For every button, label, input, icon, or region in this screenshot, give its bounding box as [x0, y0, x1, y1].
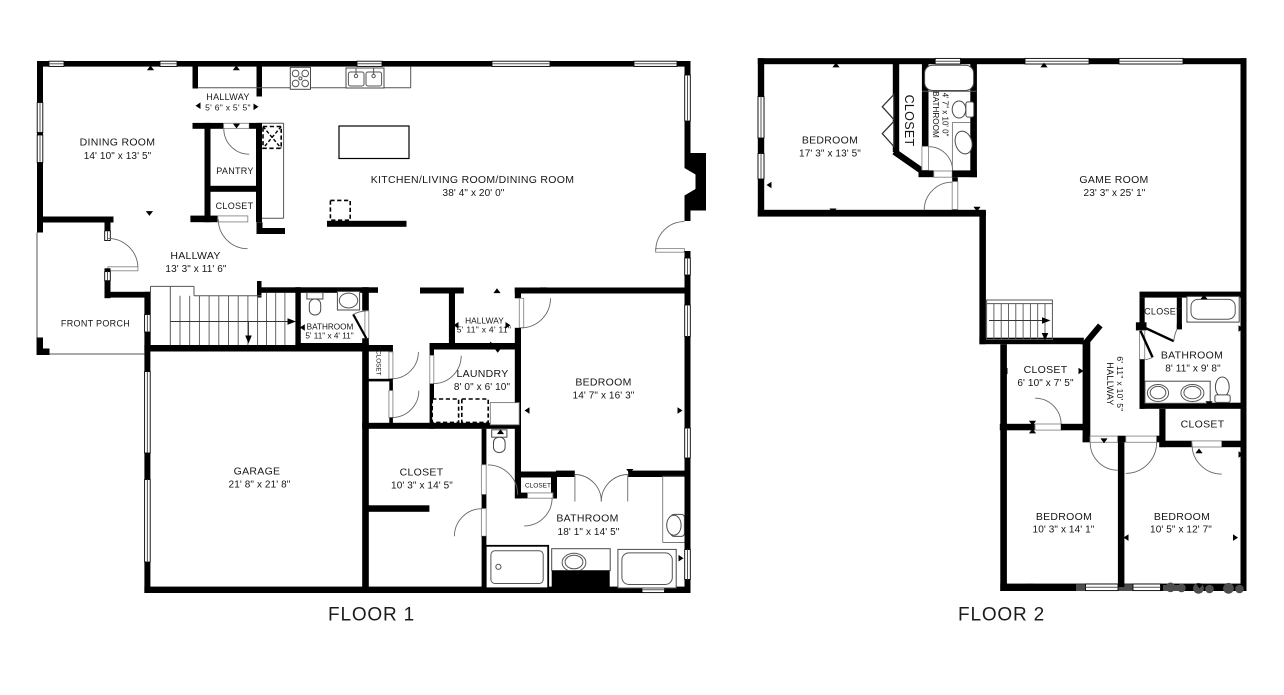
svg-text:4' 7" x 10' 0": 4' 7" x 10' 0" [941, 93, 950, 137]
svg-text:8' 11" x 9' 8": 8' 11" x 9' 8" [1165, 364, 1221, 375]
svg-text:BATHROOM: BATHROOM [1161, 350, 1223, 362]
svg-text:BEDROOM: BEDROOM [1154, 511, 1210, 523]
svg-text:14' 7" x 16' 3": 14' 7" x 16' 3" [573, 391, 635, 402]
svg-text:HALLWAY: HALLWAY [206, 92, 249, 102]
svg-text:10' 3" x 14' 1": 10' 3" x 14' 1" [1033, 525, 1095, 536]
svg-text:23' 3" x 25' 1": 23' 3" x 25' 1" [1084, 188, 1146, 199]
svg-text:13' 3" x 11' 6": 13' 3" x 11' 6" [165, 264, 227, 275]
svg-text:14' 10" x 13' 5": 14' 10" x 13' 5" [84, 151, 152, 162]
svg-text:HALLWAY: HALLWAY [170, 250, 220, 262]
svg-text:5' 6" x 5' 5": 5' 6" x 5' 5" [205, 102, 251, 112]
svg-text:CLOSET: CLOSET [902, 95, 916, 147]
svg-text:5' 11" x 4' 11": 5' 11" x 4' 11" [457, 325, 512, 335]
svg-text:FLOOR 2: FLOOR 2 [958, 605, 1045, 626]
svg-text:BEDROOM: BEDROOM [575, 377, 631, 389]
svg-text:CLOSET: CLOSET [375, 350, 382, 375]
svg-text:8' 0" x 6' 10": 8' 0" x 6' 10" [454, 382, 511, 393]
svg-text:CLOSET: CLOSET [1144, 307, 1182, 317]
svg-text:10' 3" x 14' 5": 10' 3" x 14' 5" [391, 481, 453, 492]
svg-text:FLOOR 1: FLOOR 1 [328, 605, 415, 626]
svg-text:CLOSET: CLOSET [216, 201, 254, 211]
svg-text:GARAGE: GARAGE [234, 466, 281, 478]
svg-text:6' 10" x 7' 5": 6' 10" x 7' 5" [1017, 378, 1074, 389]
svg-text:BATHROOM: BATHROOM [307, 323, 354, 332]
svg-text:FRONT PORCH: FRONT PORCH [61, 319, 130, 329]
svg-text:CLOSET: CLOSET [1181, 419, 1225, 431]
svg-text:CLOSET: CLOSET [1024, 364, 1068, 376]
svg-text:21' 8" x 21' 8": 21' 8" x 21' 8" [229, 480, 291, 491]
svg-text:HALLWAY: HALLWAY [1105, 362, 1115, 405]
svg-text:PANTRY: PANTRY [216, 166, 253, 176]
svg-text:CLOSET: CLOSET [400, 467, 444, 479]
svg-text:DINING ROOM: DINING ROOM [80, 136, 156, 148]
svg-text:6' 11" x 10' 5": 6' 11" x 10' 5" [1115, 356, 1125, 411]
svg-text:BEDROOM: BEDROOM [802, 135, 858, 147]
svg-text:GAME ROOM: GAME ROOM [1079, 174, 1148, 186]
svg-text:BATHROOM: BATHROOM [931, 91, 940, 138]
svg-text:KITCHEN/LIVING ROOM/DINING ROO: KITCHEN/LIVING ROOM/DINING ROOM [371, 174, 575, 186]
svg-text:38' 4" x 20' 0": 38' 4" x 20' 0" [443, 188, 505, 199]
svg-text:CLOSET: CLOSET [525, 482, 551, 489]
svg-text:17' 3" x 13' 5": 17' 3" x 13' 5" [799, 149, 861, 160]
svg-text:BEDROOM: BEDROOM [1036, 511, 1092, 523]
svg-text:10' 5" x 12' 7": 10' 5" x 12' 7" [1150, 525, 1212, 536]
svg-text:LAUNDRY: LAUNDRY [456, 368, 508, 380]
svg-text:5' 11" x 4' 11": 5' 11" x 4' 11" [305, 332, 353, 341]
svg-text:18' 1" x 14' 5": 18' 1" x 14' 5" [558, 527, 620, 538]
svg-text:BATHROOM: BATHROOM [556, 513, 618, 525]
